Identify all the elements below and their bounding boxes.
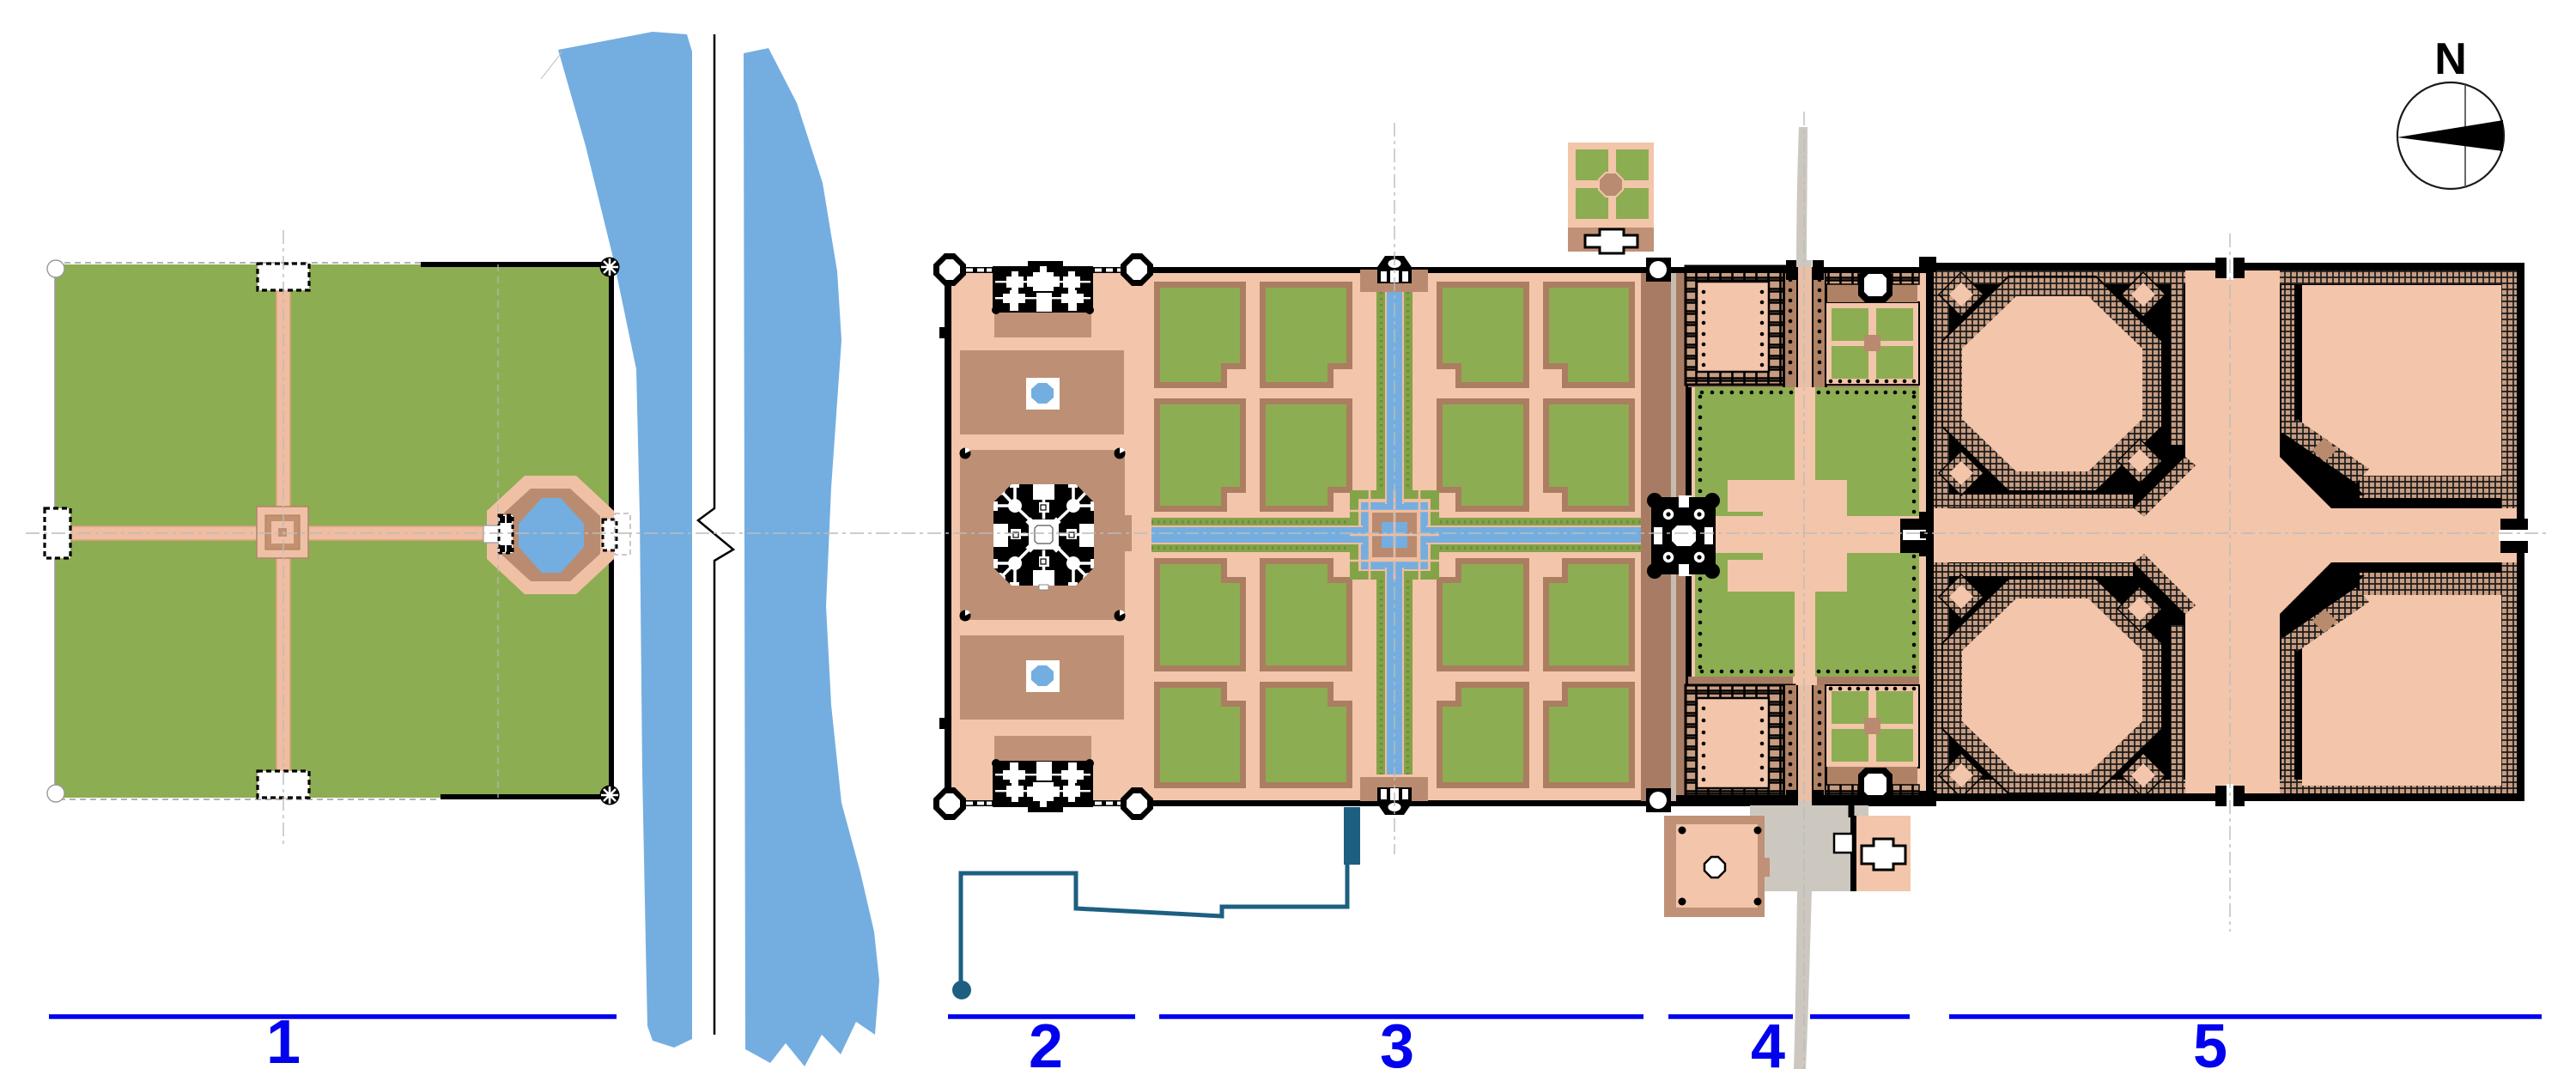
svg-text:5: 5 [2193,1012,2227,1069]
svg-text:4: 4 [1751,1012,1785,1069]
svg-text:1: 1 [266,1008,301,1069]
svg-text:2: 2 [1029,1012,1063,1069]
svg-text:3: 3 [1380,1012,1414,1069]
svg-text:N: N [2434,34,2467,84]
